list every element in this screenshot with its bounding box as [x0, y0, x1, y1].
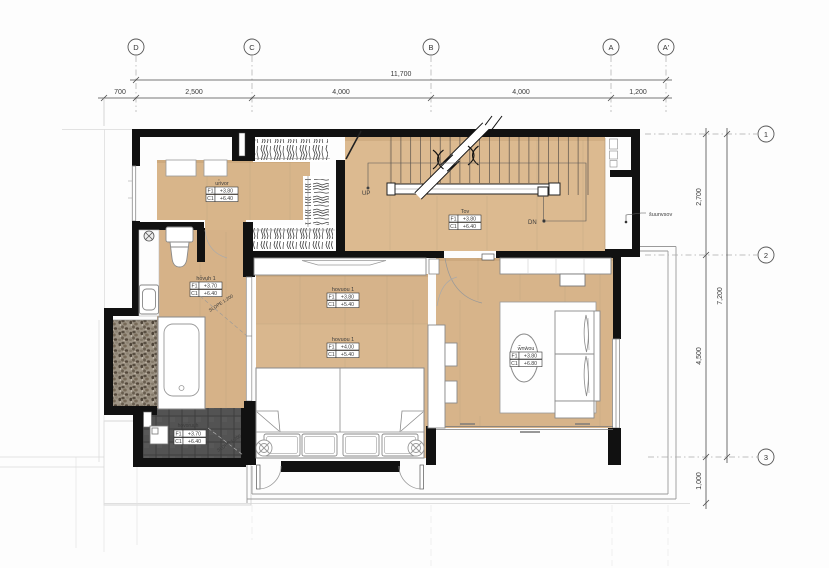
svg-text:D: D: [133, 43, 139, 52]
svg-text:+5.40: +5.40: [341, 352, 354, 358]
svg-text:+6.40: +6.40: [220, 196, 233, 202]
svg-text:C1: C1: [191, 291, 198, 297]
svg-text:+3.80: +3.80: [463, 216, 476, 222]
svg-text:C1: C1: [328, 352, 335, 358]
svg-text:+6.40: +6.40: [204, 291, 217, 297]
svg-text:w̃nẁou: w̃nẁou: [517, 345, 535, 352]
svg-text:A: A: [608, 43, 613, 52]
svg-text:7,200: 7,200: [717, 287, 724, 305]
svg-text:1,000: 1,000: [696, 472, 703, 490]
svg-text:2,700: 2,700: [696, 188, 703, 206]
svg-text:4,000: 4,000: [332, 89, 350, 96]
svg-text:11,700: 11,700: [391, 71, 412, 78]
svg-text:hovuou 1: hovuou 1: [332, 337, 354, 343]
svg-text:4,000: 4,000: [512, 89, 530, 96]
svg-text:C: C: [249, 43, 255, 52]
svg-text:F1: F1: [328, 294, 334, 300]
svg-text:ho̊vụh 1: ho̊vụh 1: [196, 275, 215, 282]
svg-text:+3.70: +3.70: [188, 431, 201, 437]
svg-text:+3.80: +3.80: [220, 188, 233, 194]
svg-text:A': A': [663, 43, 670, 52]
svg-text:C1: C1: [450, 224, 457, 230]
svg-text:+3.80: +3.80: [341, 294, 354, 300]
svg-text:hovor̀uụh: hovor̀uụh: [178, 422, 199, 429]
svg-text:DN: DN: [528, 220, 537, 226]
svg-text:F1: F1: [450, 216, 456, 222]
svg-text:F1: F1: [191, 283, 197, 289]
svg-text:3: 3: [764, 453, 768, 462]
svg-text:C1: C1: [207, 196, 214, 202]
svg-text:700: 700: [114, 89, 126, 96]
svg-text:2,500: 2,500: [185, 89, 203, 96]
svg-text:UP: UP: [362, 191, 370, 197]
svg-text:hovuou 1: hovuou 1: [332, 287, 354, 293]
svg-text:1,200: 1,200: [629, 89, 647, 96]
svg-text:ur̊ivor: ur̊ivor: [215, 179, 229, 187]
svg-text:+6.80: +6.80: [524, 361, 537, 367]
svg-text:F1: F1: [511, 353, 517, 359]
svg-text:+6.40: +6.40: [188, 439, 201, 445]
svg-text:C1: C1: [328, 302, 335, 308]
svg-text:F1: F1: [207, 188, 213, 194]
svg-text:4,500: 4,500: [696, 347, 703, 365]
svg-text:Tov: Tov: [461, 209, 470, 215]
svg-text:F1: F1: [328, 344, 334, 350]
svg-text:2: 2: [764, 251, 768, 260]
svg-text:+5.40: +5.40: [341, 302, 354, 308]
svg-text:1: 1: [764, 130, 768, 139]
svg-text:+3.70: +3.70: [204, 283, 217, 289]
svg-text:+3.80: +3.80: [524, 353, 537, 359]
svg-text:F1: F1: [175, 431, 181, 437]
svg-text:C1: C1: [511, 361, 518, 367]
svg-text:B: B: [428, 43, 433, 52]
svg-text:C1: C1: [175, 439, 182, 445]
svg-text:+4.00: +4.00: [341, 344, 354, 350]
svg-text:+6.40: +6.40: [463, 224, 476, 230]
svg-text:šuunvsov: šuunvsov: [649, 212, 672, 218]
